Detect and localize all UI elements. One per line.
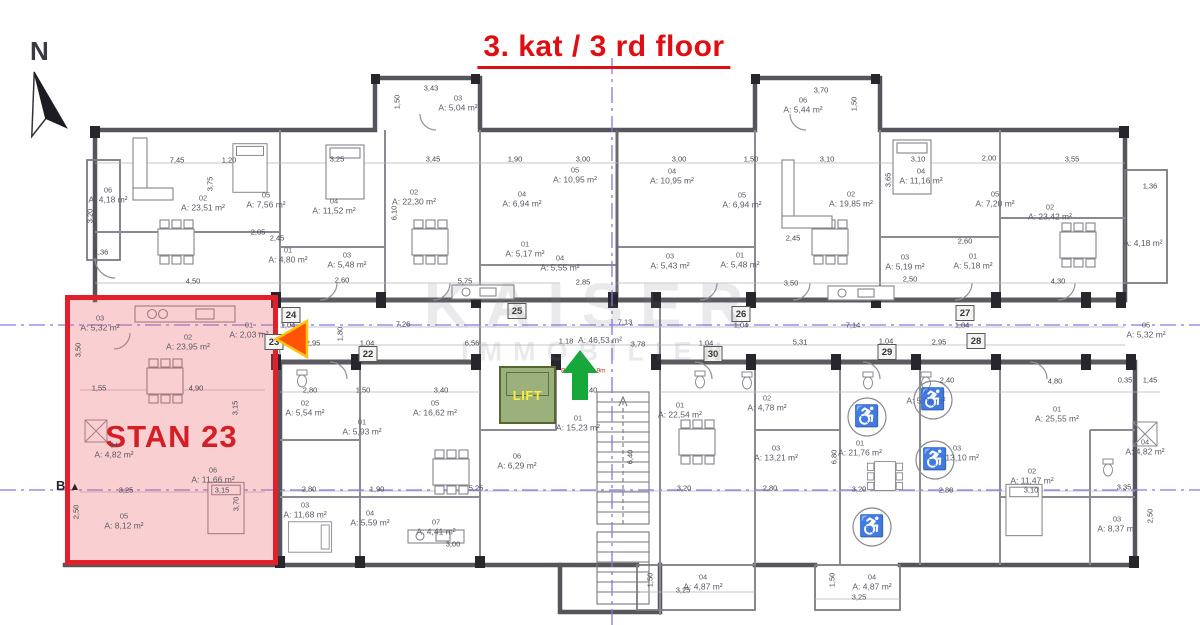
stan23-pointer-arrow-icon bbox=[276, 321, 307, 357]
section-marker-b: B▲ bbox=[56, 478, 80, 493]
arrow-icons bbox=[0, 0, 1200, 625]
compass-needle-icon bbox=[16, 67, 68, 139]
north-label: N bbox=[30, 36, 68, 67]
entrance-up-arrow-icon bbox=[562, 350, 598, 400]
floor-plan-page: 3. kat / 3 rd floor N bbox=[0, 0, 1200, 625]
page-title: 3. kat / 3 rd floor bbox=[477, 30, 730, 69]
section-label: B bbox=[56, 478, 65, 493]
compass-north: N bbox=[16, 36, 68, 144]
section-triangle-icon: ▲ bbox=[69, 481, 80, 493]
